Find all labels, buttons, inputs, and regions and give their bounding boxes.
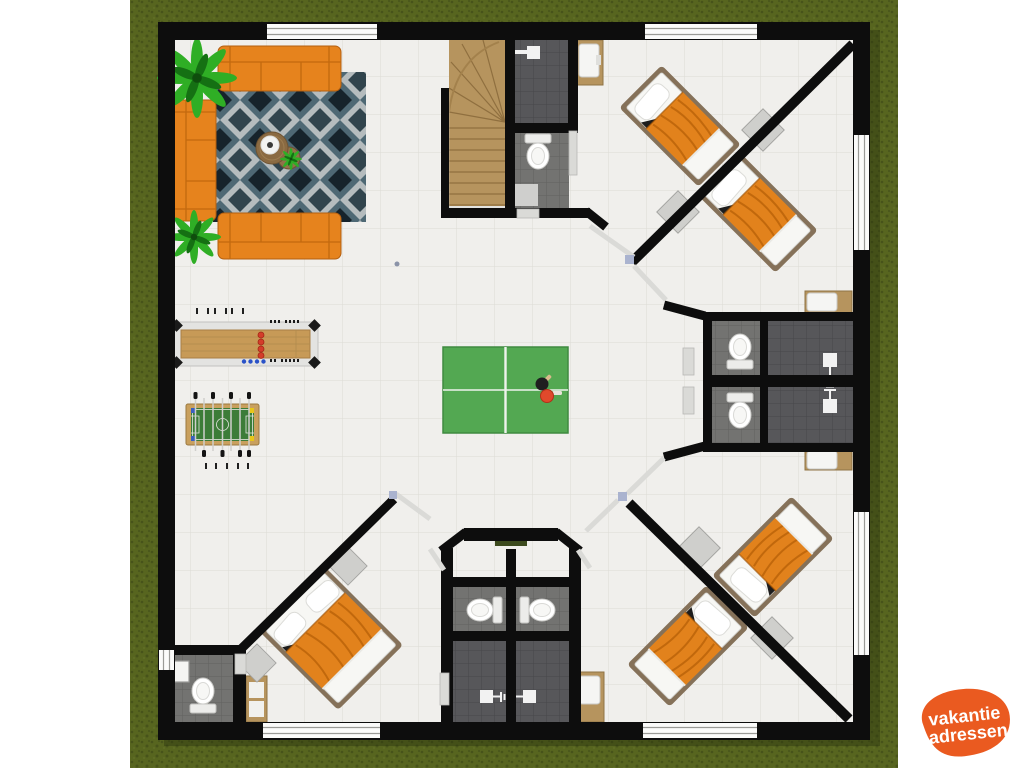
sofa-left [172,100,216,221]
wall-stairs-bath-inner [512,123,578,133]
door-rbath-bottom [683,387,694,414]
window-left-small [159,650,174,670]
hinge-se [618,492,627,501]
cabinet-sw [246,676,267,722]
wall-rbath-divider-top [760,316,768,379]
ceiling-light-dot [395,262,400,267]
floor-plan-svg: vakantie adressen [0,0,1024,768]
door-bbath-left-side [440,673,449,705]
wall-rbath-divider-bottom [760,385,768,447]
building [157,22,870,740]
window-right-upper [854,135,869,250]
window-bottom-left [263,723,380,738]
sofa-bottom [218,213,341,259]
bath-mat [514,184,538,206]
toilet-right-top [727,334,753,369]
wall-rbath-bottom [703,443,853,452]
wall-bbath-h1 [443,577,578,587]
wall-stairs-left [441,88,449,218]
toilet-bottom-right [520,597,555,623]
hinge-sw [389,491,397,499]
vanity-bottom-center [577,672,604,722]
staircase [444,40,505,216]
window-top-left [267,24,377,39]
wall-swbath-top [172,645,237,655]
door-swbath [235,654,246,674]
wall-bbath-h2 [443,631,578,641]
shower-floor-bottom-right [516,641,569,722]
window-bottom-right [643,723,757,738]
shower-right-bottom [823,386,837,414]
window-top-right [645,24,757,39]
wall-outer-left [158,22,175,740]
door-stairs-bath-bottom [517,209,539,218]
door-stairs-bath-side [569,131,577,175]
vanity-right-top [805,291,852,313]
shuffleboard-table [170,319,321,369]
shower-floor-right-top [768,321,853,375]
living-room [157,38,366,264]
wall-bbath-top [464,528,558,541]
shower-floor-bottom-left [453,641,506,722]
ping-pong-table [443,347,568,433]
wall-rbath-top [703,312,853,321]
floor-plan-image: vakantie adressen [0,0,1024,768]
wall-rbath-center [703,375,853,387]
vanity-stairs-bath [577,40,603,85]
door-rbath-top [683,348,694,375]
toilet-right-bottom [727,393,753,428]
wall-stairs-bath-right [568,38,578,130]
wall-stairs-bath-bottom [443,208,590,218]
wall-outer-top [158,22,870,40]
shower-floor-right-bottom [768,387,853,443]
sofa-top [218,46,341,91]
table-plant [280,148,302,170]
toilet-stairs-bath [525,134,551,169]
window-right-lower [854,512,869,655]
toilet-sw [190,678,216,713]
hinge-ne [625,255,634,264]
potted-plant-bottom [167,210,221,264]
vakantieadressen-logo: vakantie adressen [919,684,1013,760]
toilet-bottom-left [467,597,502,623]
